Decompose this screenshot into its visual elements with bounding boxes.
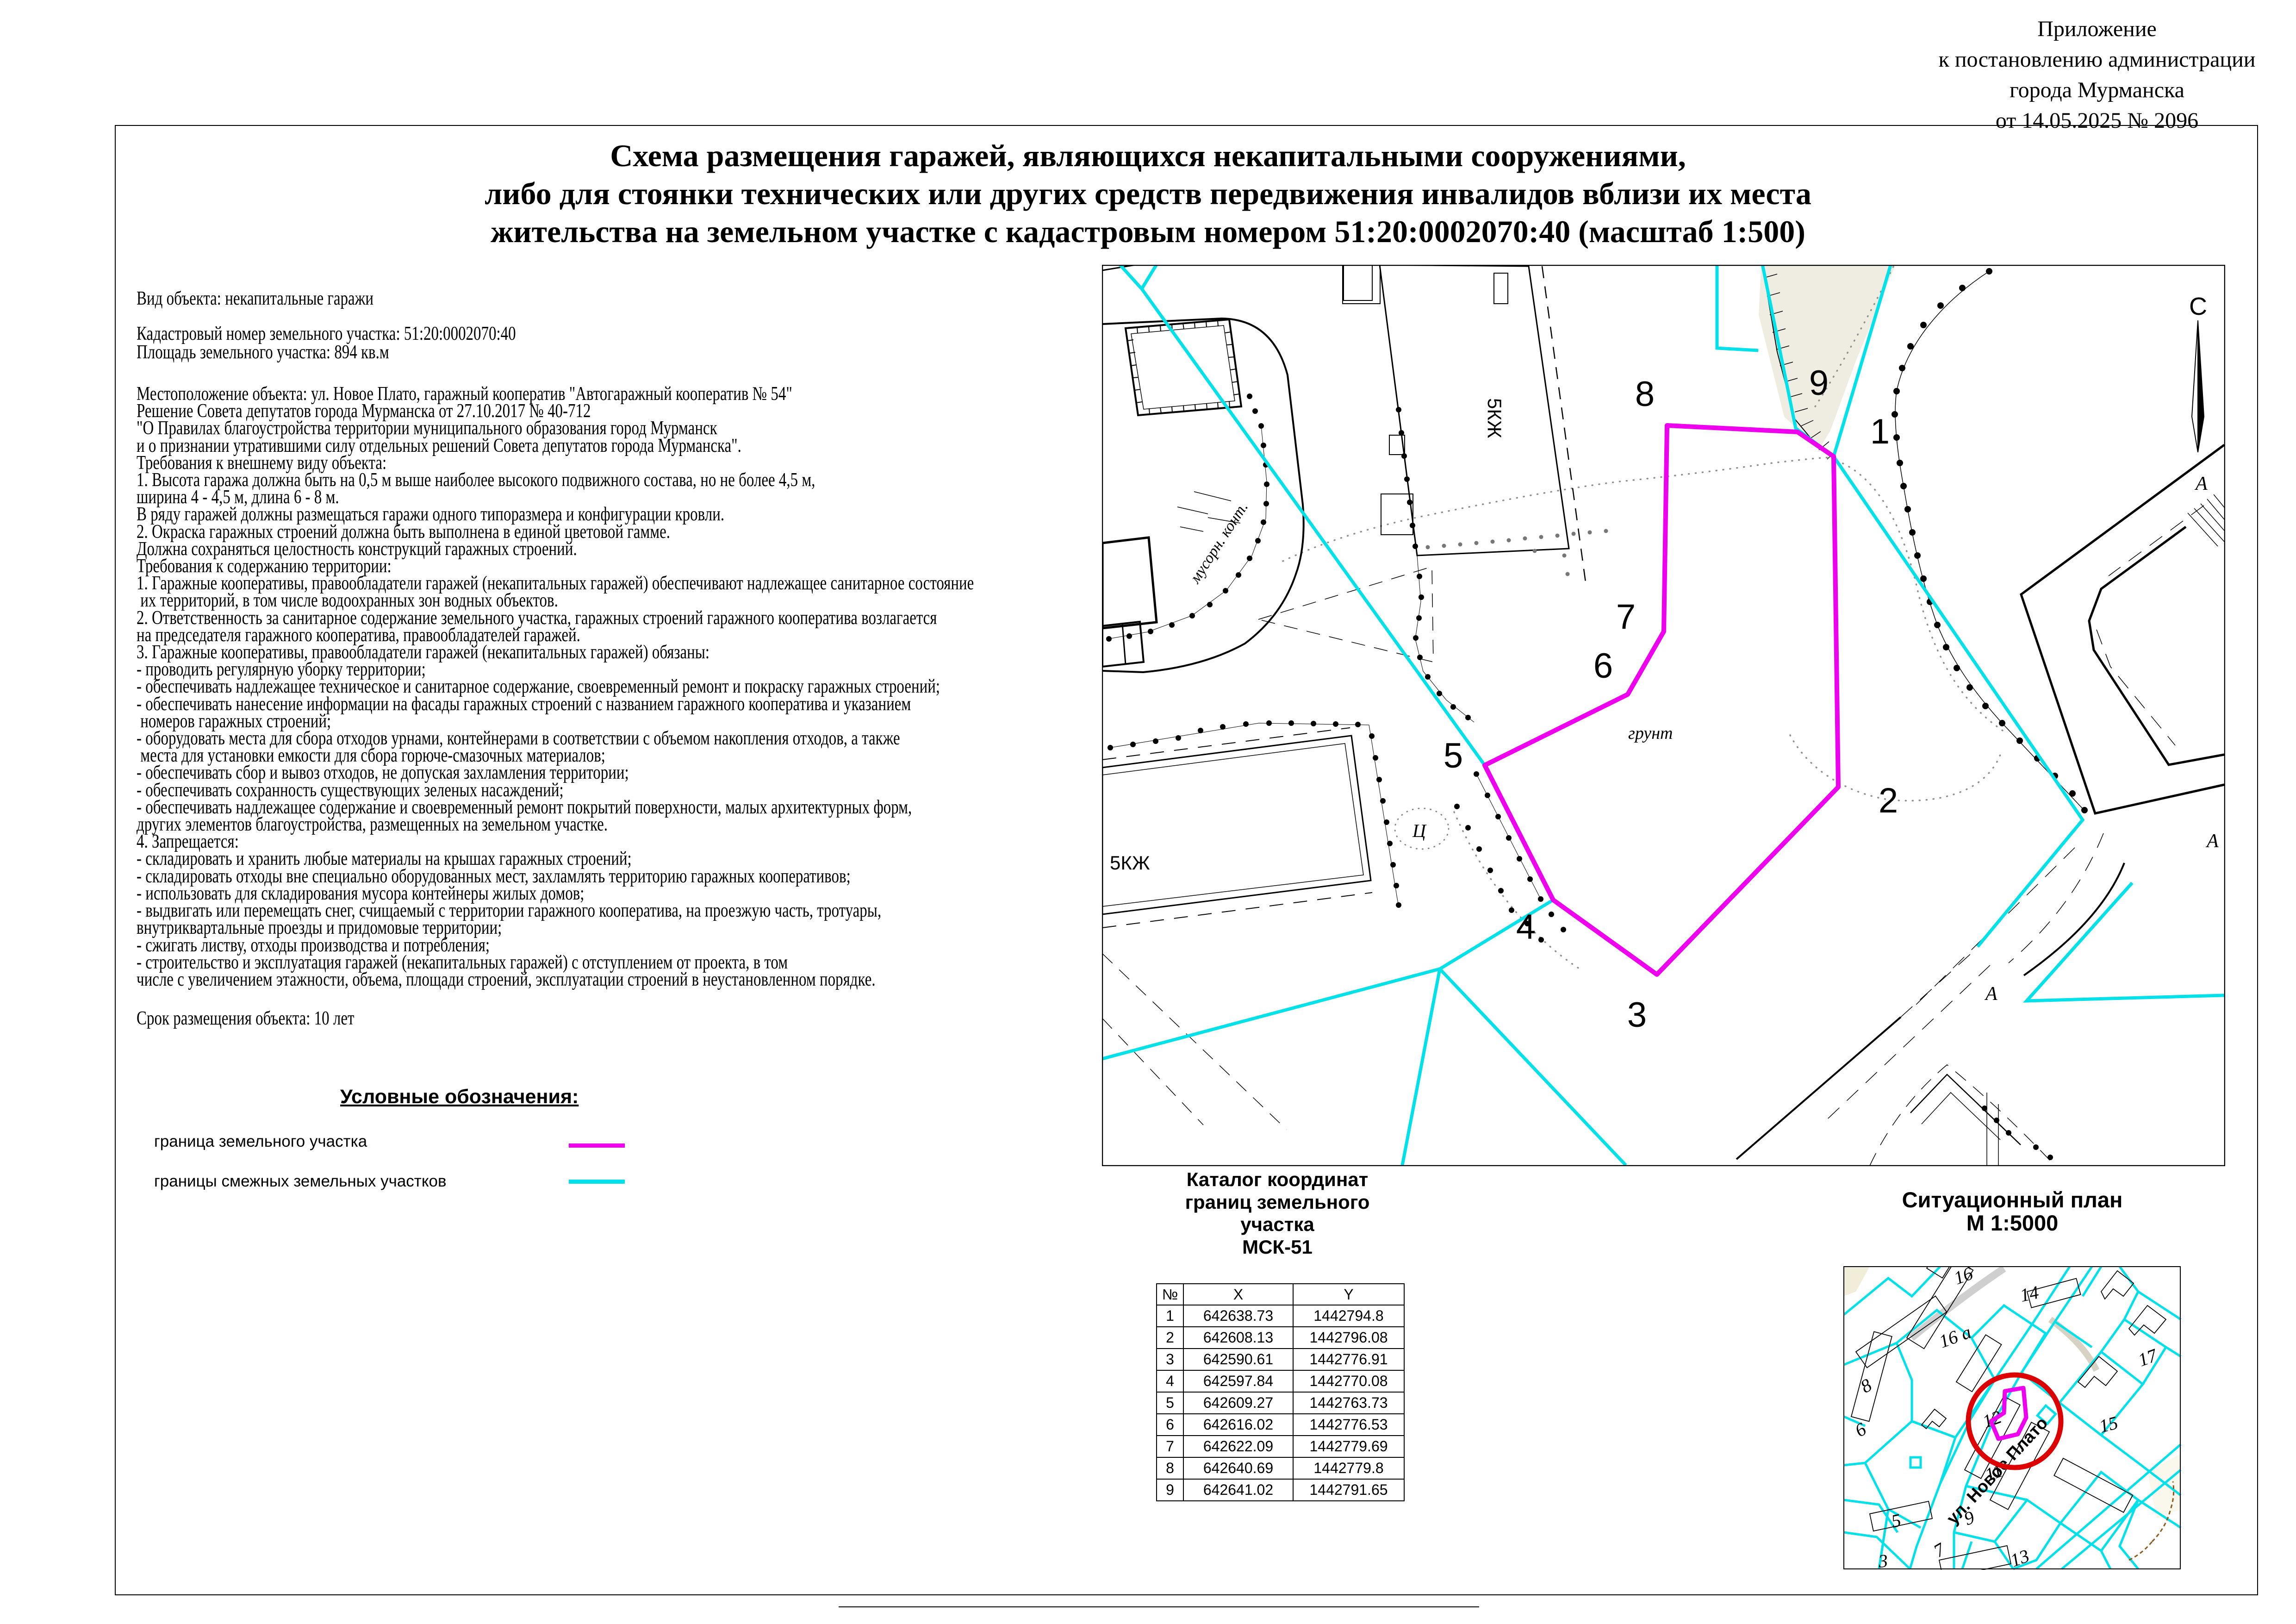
svg-text:4: 4 bbox=[1516, 907, 1536, 947]
svg-text:мусорн. конт.: мусорн. конт. bbox=[1186, 499, 1251, 587]
svg-text:5: 5 bbox=[1444, 736, 1463, 775]
svg-text:С: С bbox=[2189, 293, 2207, 320]
svg-text:Ц: Ц bbox=[1412, 820, 1427, 841]
svg-text:6: 6 bbox=[1851, 1418, 1870, 1441]
svg-text:2: 2 bbox=[1879, 781, 1898, 820]
svg-text:8: 8 bbox=[1635, 375, 1655, 414]
svg-text:5КЖ: 5КЖ bbox=[1110, 852, 1150, 874]
svg-text:9: 9 bbox=[1809, 363, 1829, 403]
svg-text:7: 7 bbox=[1616, 597, 1636, 637]
svg-text:1: 1 bbox=[1870, 412, 1890, 451]
svg-text:А: А bbox=[2194, 473, 2208, 494]
svg-text:3: 3 bbox=[1627, 995, 1647, 1035]
svg-text:грунт: грунт bbox=[1628, 724, 1673, 743]
svg-text:7: 7 bbox=[1930, 1538, 1949, 1562]
svg-text:6: 6 bbox=[1593, 646, 1613, 686]
svg-text:17: 17 bbox=[2135, 1344, 2161, 1371]
svg-text:3: 3 bbox=[1877, 1550, 1889, 1570]
svg-text:5КЖ: 5КЖ bbox=[1484, 398, 1506, 438]
svg-text:16 а: 16 а bbox=[1936, 1321, 1974, 1352]
svg-text:14: 14 bbox=[2018, 1281, 2041, 1305]
svg-text:А: А bbox=[1984, 983, 1997, 1005]
svg-text:5: 5 bbox=[1890, 1510, 1903, 1532]
svg-text:А: А bbox=[2205, 831, 2219, 852]
